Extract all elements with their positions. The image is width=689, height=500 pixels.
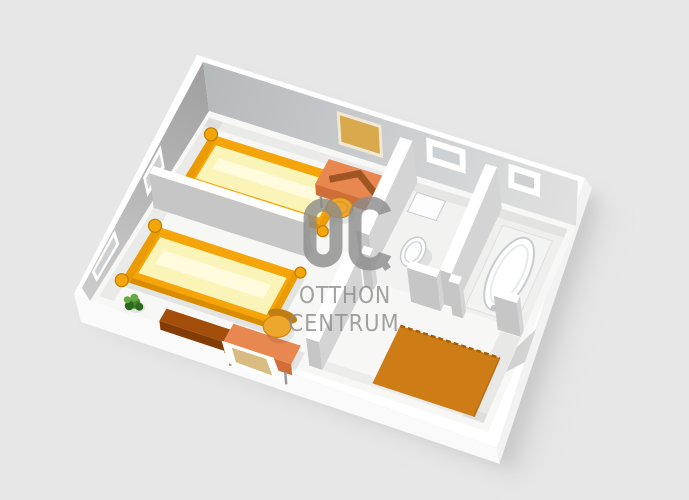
plant-bedroom2-leaf bbox=[135, 303, 143, 311]
desk-bedroom2-leg bbox=[285, 372, 286, 384]
watermark-text-line1: OTTHON bbox=[299, 283, 391, 309]
plant-bedroom2-leaf bbox=[124, 296, 131, 303]
chair-bedroom2-seat bbox=[263, 315, 291, 337]
bed-bedroom2-post bbox=[149, 219, 162, 232]
scene-render bbox=[0, 0, 689, 500]
bed-bedroom1-post bbox=[205, 128, 218, 141]
bed-bedroom2-post bbox=[295, 267, 306, 278]
floor-plan-3d-view: OTTHON CENTRUM bbox=[0, 0, 689, 500]
bed-bedroom1-post bbox=[317, 226, 328, 237]
plant-bedroom2-leaf bbox=[130, 294, 138, 302]
floor-plan-image: OTTHON CENTRUM bbox=[0, 0, 689, 500]
wall-bath-front-right bbox=[494, 288, 524, 337]
watermark-text-line2: CENTRUM bbox=[289, 311, 400, 337]
bed-bedroom2-post bbox=[115, 274, 128, 287]
